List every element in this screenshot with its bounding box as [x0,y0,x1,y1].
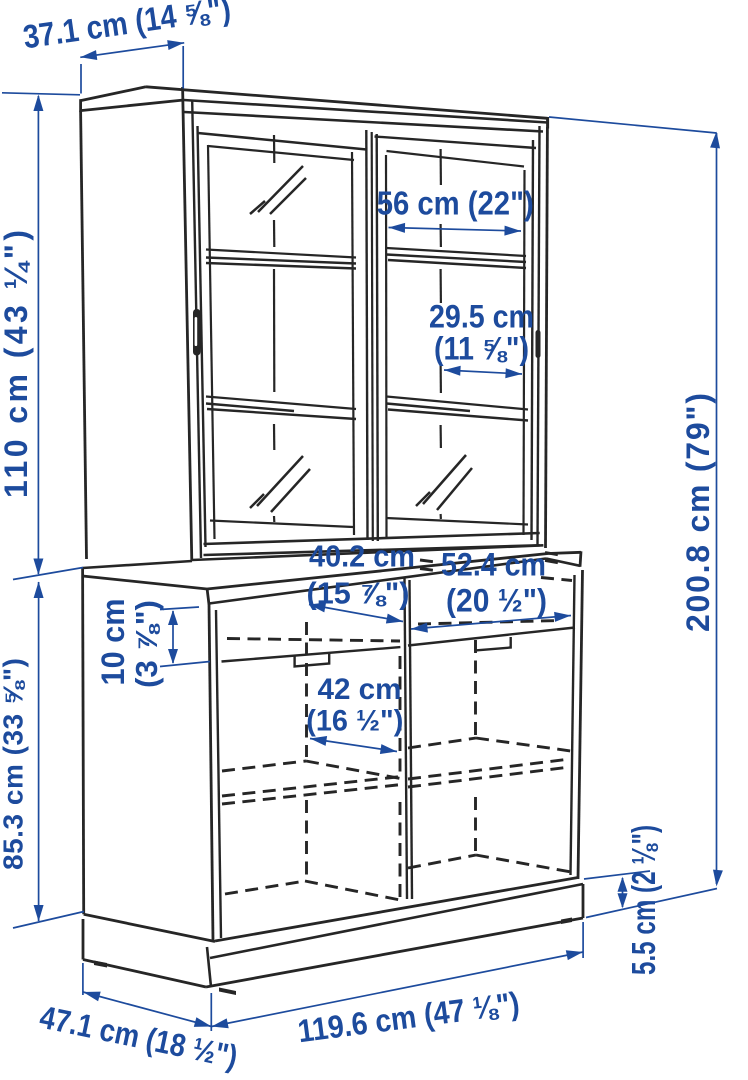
svg-text:(3 ⅞"): (3 ⅞") [129,600,164,688]
svg-text:52.4 cm: 52.4 cm [441,547,546,583]
svg-text:5.5 cm (2 ⅛"): 5.5 cm (2 ⅛") [625,825,662,975]
svg-text:85.3 cm (33 ⅝"): 85.3 cm (33 ⅝") [0,658,29,870]
svg-text:42 cm: 42 cm [318,673,402,706]
svg-text:(16 ½"): (16 ½") [306,705,403,738]
svg-text:110 cm (43 ¼"): 110 cm (43 ¼") [0,230,34,498]
svg-text:(20 ½"): (20 ½") [446,583,547,619]
svg-text:(15 ⅞"): (15 ⅞") [307,576,410,611]
svg-text:10 cm: 10 cm [95,599,131,686]
svg-text:40.2 cm: 40.2 cm [309,539,415,574]
svg-text:(11 ⅝"): (11 ⅝") [434,331,529,367]
svg-text:29.5 cm: 29.5 cm [429,299,534,335]
svg-text:200.8 cm (79"): 200.8 cm (79") [680,393,716,632]
svg-text:56 cm (22"): 56 cm (22") [377,185,534,222]
